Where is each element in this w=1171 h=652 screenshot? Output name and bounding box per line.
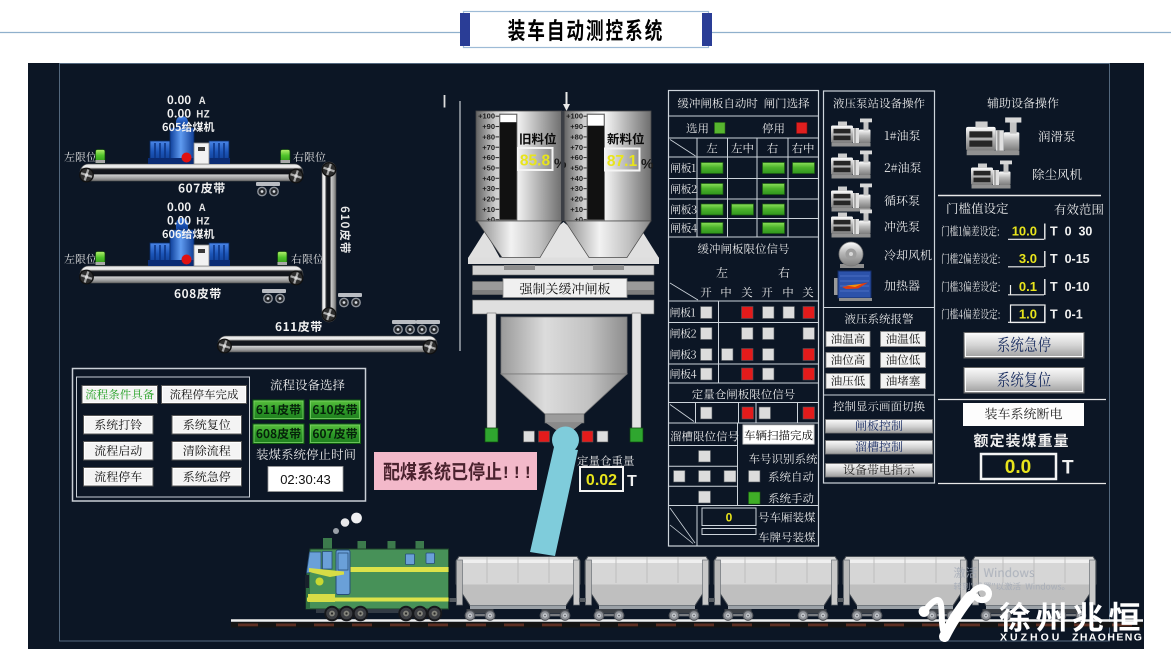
svg-text:+20: +20 [482, 195, 495, 204]
svg-text:3.0: 3.0 [1019, 251, 1037, 266]
svg-text:+100: +100 [566, 112, 583, 121]
svg-text:+80: +80 [482, 132, 495, 141]
svg-text:T 0-15: T 0-15 [1050, 252, 1090, 266]
svg-text:87.1: 87.1 [607, 153, 638, 170]
svg-text:%: % [641, 156, 654, 172]
svg-text:0.0: 0.0 [1005, 457, 1031, 478]
svg-text:+40: +40 [482, 174, 495, 183]
svg-text:+10: +10 [482, 205, 495, 214]
svg-text:+10: +10 [570, 205, 583, 214]
svg-text:85.8: 85.8 [520, 153, 551, 170]
svg-text:%: % [554, 155, 567, 171]
svg-text:XUZHOU: XUZHOU [1000, 632, 1062, 644]
svg-text:!: ! [525, 463, 531, 482]
svg-text:+50: +50 [482, 163, 495, 172]
svg-text:!: ! [514, 463, 520, 482]
svg-text:+20: +20 [570, 195, 583, 204]
svg-text:0.02: 0.02 [586, 472, 617, 489]
svg-text:T 0 30: T 0 30 [1050, 225, 1092, 239]
svg-text:+40: +40 [570, 174, 583, 183]
svg-text:+100: +100 [478, 112, 495, 121]
svg-text:+90: +90 [570, 122, 583, 131]
svg-text:+70: +70 [482, 143, 495, 152]
svg-text:10.0: 10.0 [1012, 224, 1037, 239]
svg-text:+30: +30 [482, 184, 495, 193]
svg-text:0.1: 0.1 [1019, 279, 1037, 294]
svg-text:T 0-10: T 0-10 [1050, 280, 1090, 294]
svg-text:+60: +60 [570, 153, 583, 162]
svg-text:0: 0 [726, 511, 733, 525]
svg-text:T: T [1062, 458, 1074, 479]
svg-text:02:30:43: 02:30:43 [280, 472, 331, 487]
svg-text:T: T [627, 473, 637, 490]
svg-text:+60: +60 [482, 153, 495, 162]
svg-text:+90: +90 [482, 122, 495, 131]
svg-text:+70: +70 [570, 143, 583, 152]
svg-text:!: ! [503, 463, 509, 482]
svg-text:1.0: 1.0 [1019, 307, 1037, 322]
svg-text:ZHAOHENG: ZHAOHENG [1072, 632, 1143, 644]
svg-text:+50: +50 [570, 163, 583, 172]
svg-text:+30: +30 [570, 184, 583, 193]
svg-text:T 0-1: T 0-1 [1050, 308, 1083, 322]
svg-text:+80: +80 [570, 132, 583, 141]
